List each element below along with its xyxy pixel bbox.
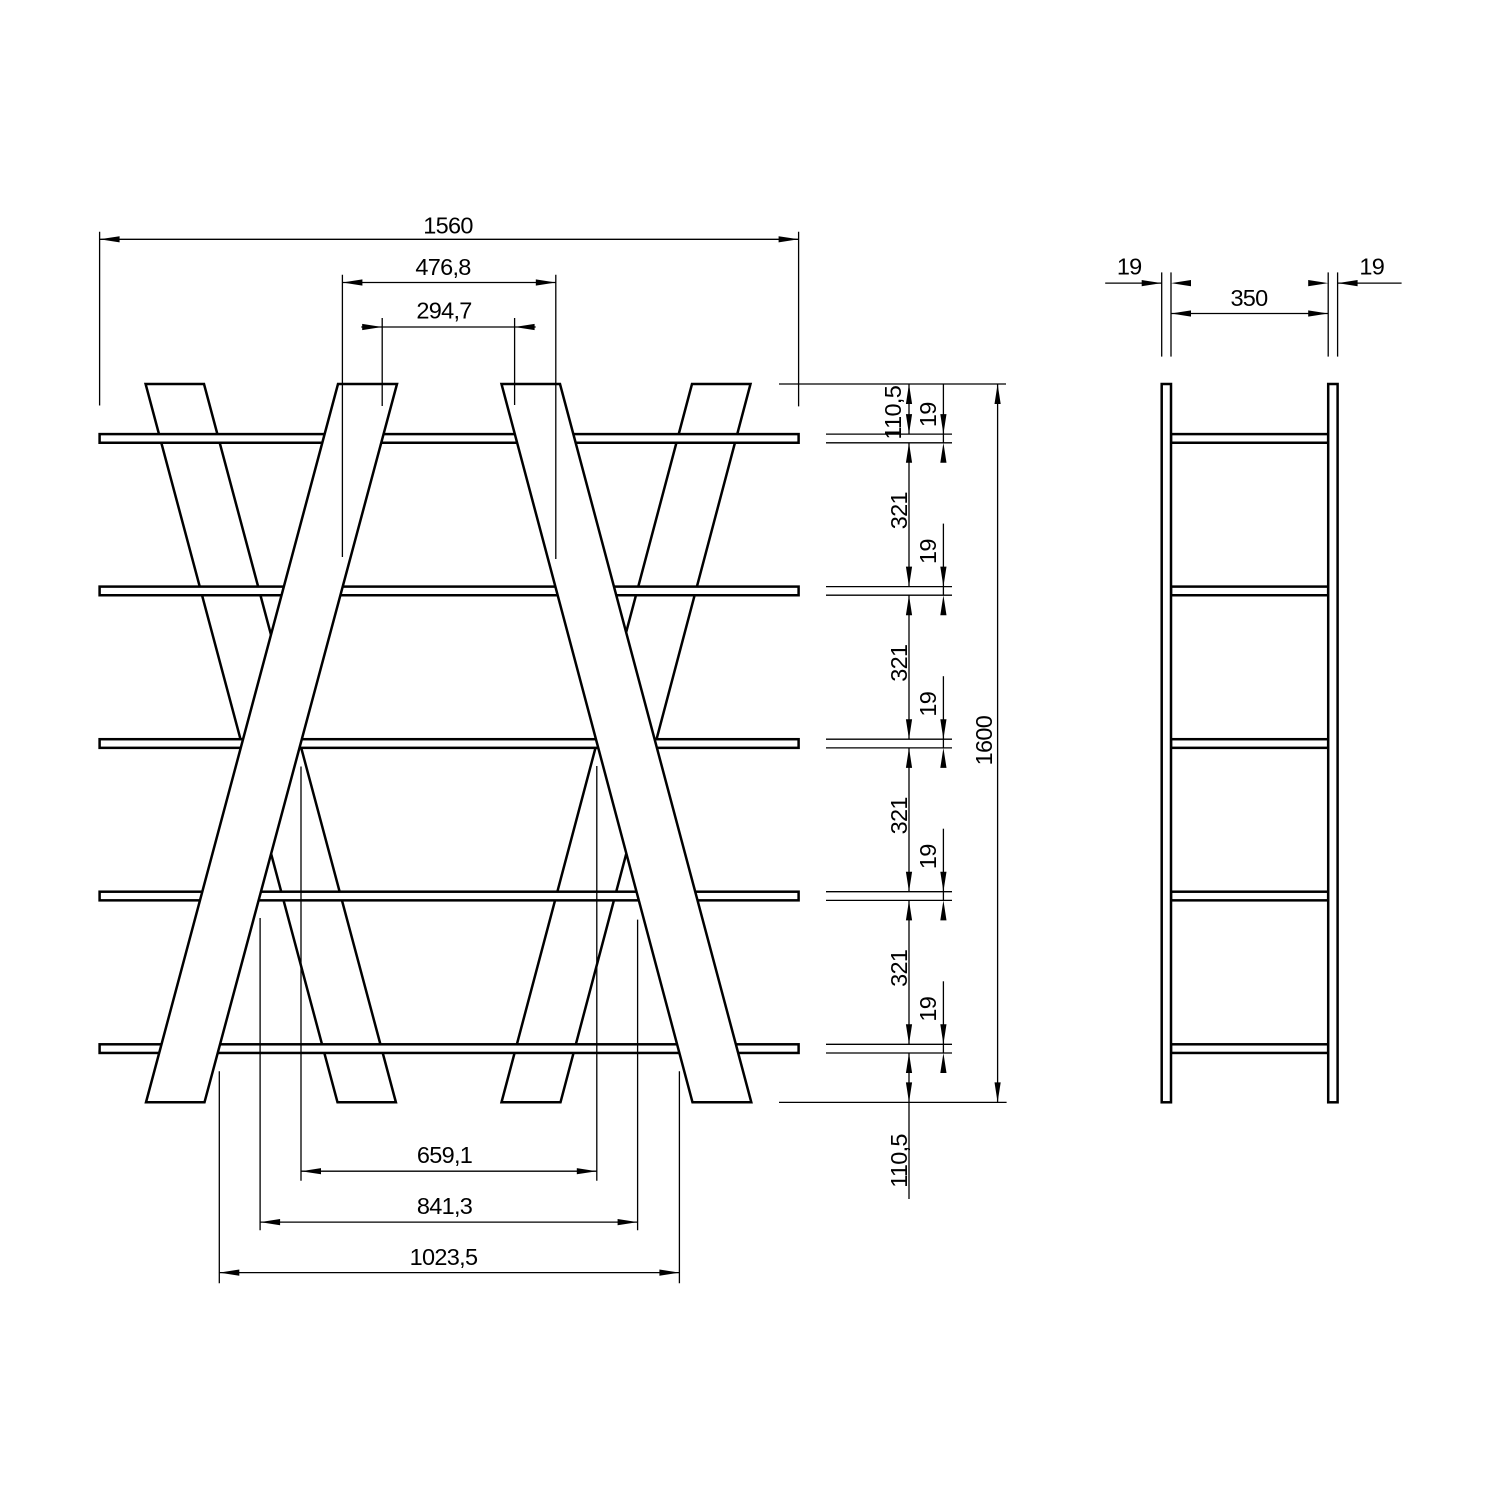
svg-text:321: 321 <box>886 950 912 987</box>
svg-text:321: 321 <box>886 492 912 529</box>
svg-text:19: 19 <box>1359 253 1384 279</box>
svg-text:110,5: 110,5 <box>880 385 906 439</box>
svg-text:110,5: 110,5 <box>886 1134 912 1188</box>
svg-text:321: 321 <box>886 797 912 834</box>
svg-text:19: 19 <box>915 844 941 869</box>
svg-text:19: 19 <box>915 692 941 717</box>
svg-text:1023,5: 1023,5 <box>410 1244 478 1270</box>
svg-text:19: 19 <box>915 997 941 1022</box>
svg-text:321: 321 <box>886 645 912 682</box>
svg-text:19: 19 <box>1117 253 1142 279</box>
svg-text:476,8: 476,8 <box>415 254 471 280</box>
svg-text:1600: 1600 <box>971 715 997 765</box>
svg-text:350: 350 <box>1230 285 1268 311</box>
svg-text:19: 19 <box>915 539 941 564</box>
svg-text:294,7: 294,7 <box>416 298 471 324</box>
svg-text:1560: 1560 <box>423 212 473 238</box>
svg-text:659,1: 659,1 <box>417 1142 472 1168</box>
svg-text:841,3: 841,3 <box>417 1193 473 1219</box>
svg-text:19: 19 <box>915 402 941 427</box>
